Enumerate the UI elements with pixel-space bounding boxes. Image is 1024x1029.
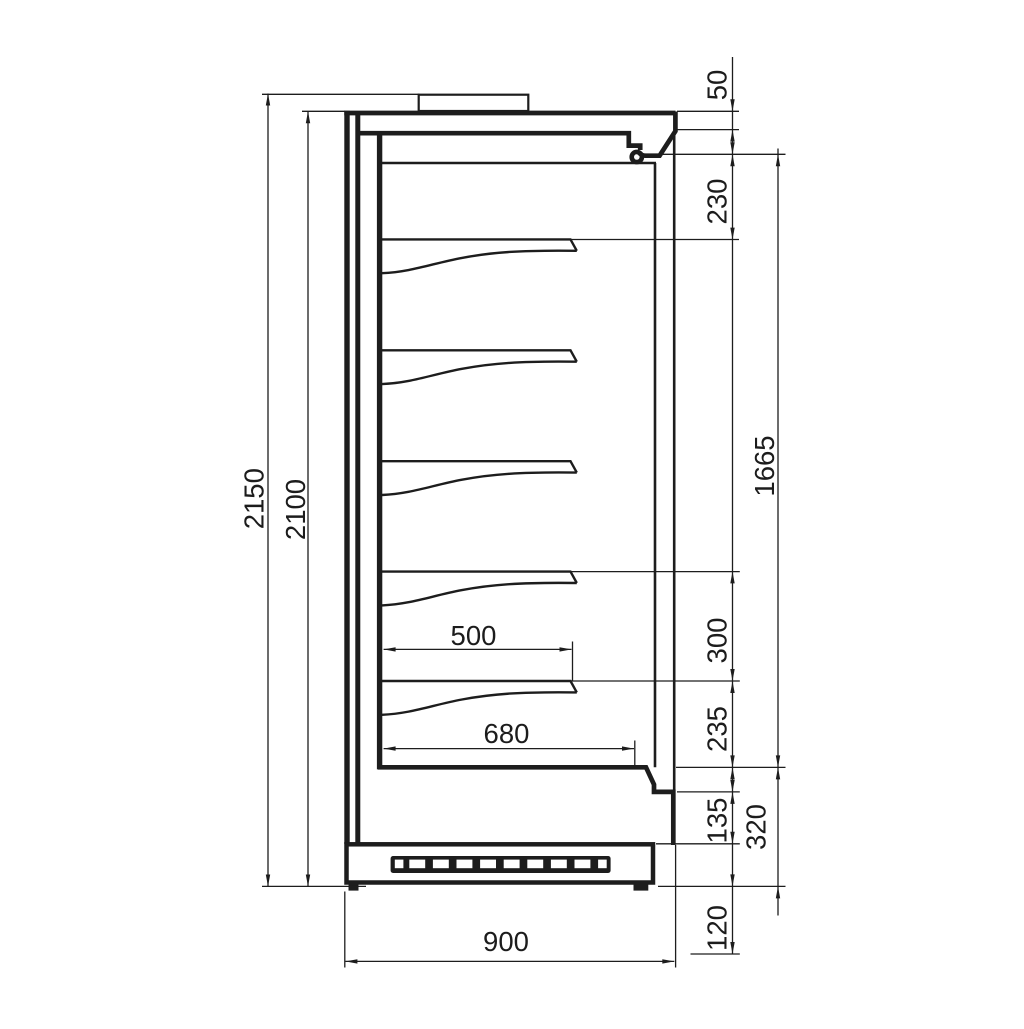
svg-text:135: 135 bbox=[702, 798, 733, 844]
svg-text:120: 120 bbox=[702, 905, 733, 951]
svg-text:230: 230 bbox=[701, 179, 732, 225]
svg-text:50: 50 bbox=[701, 70, 732, 101]
svg-text:320: 320 bbox=[741, 804, 772, 850]
svg-text:680: 680 bbox=[484, 718, 530, 749]
svg-text:2100: 2100 bbox=[280, 479, 311, 540]
svg-text:300: 300 bbox=[701, 618, 732, 664]
svg-text:235: 235 bbox=[701, 706, 732, 752]
svg-text:900: 900 bbox=[483, 926, 529, 957]
svg-text:500: 500 bbox=[451, 620, 497, 651]
svg-text:2150: 2150 bbox=[238, 468, 269, 529]
svg-text:1665: 1665 bbox=[749, 435, 780, 496]
